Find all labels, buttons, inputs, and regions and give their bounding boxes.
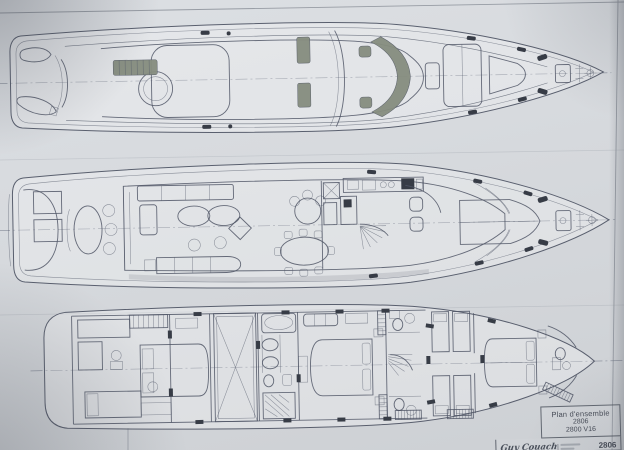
fine-print-line <box>560 447 574 449</box>
flybridge-bar <box>113 60 157 76</box>
builder-signature: Guy Couach <box>496 442 558 450</box>
fine-print-line <box>560 443 580 446</box>
main-deck-plan <box>0 157 617 292</box>
title-block-footer: Guy Couach 2806 <box>495 436 621 450</box>
drawing-reference: 2806 <box>582 440 620 450</box>
flybridge-deck-plan <box>0 17 612 137</box>
glass-hatch <box>298 83 311 107</box>
yacht-general-arrangement-drawing <box>0 0 624 450</box>
model-code: 2800 V16 <box>544 425 618 435</box>
deck-hatch <box>360 97 372 108</box>
glass-hatch <box>297 37 310 63</box>
title-block-header: Plan d'ensemble 2806 2800 V16 <box>540 404 621 438</box>
title-block: Plan d'ensemble 2806 2800 V16 Guy Couach… <box>494 404 621 450</box>
deck-hatch <box>359 46 371 57</box>
fine-print-illegible <box>557 443 582 450</box>
scanned-yacht-plan-photo: Plan d'ensemble 2806 2800 V16 Guy Couach… <box>0 0 624 450</box>
